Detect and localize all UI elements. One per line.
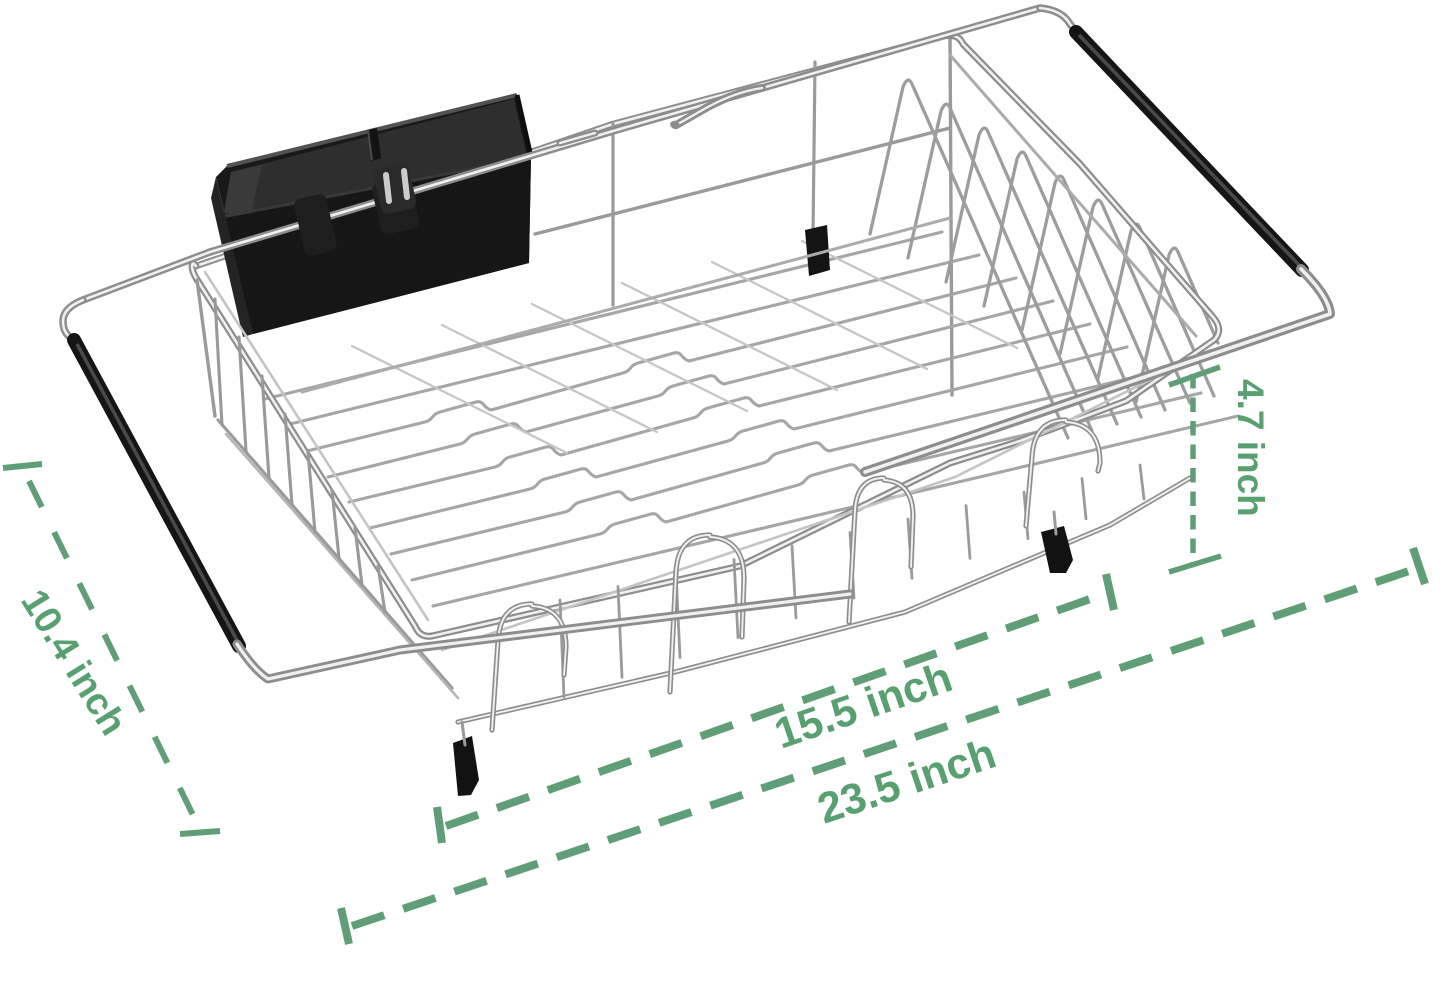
svg-text:4.7 inch: 4.7 inch <box>1230 379 1271 517</box>
